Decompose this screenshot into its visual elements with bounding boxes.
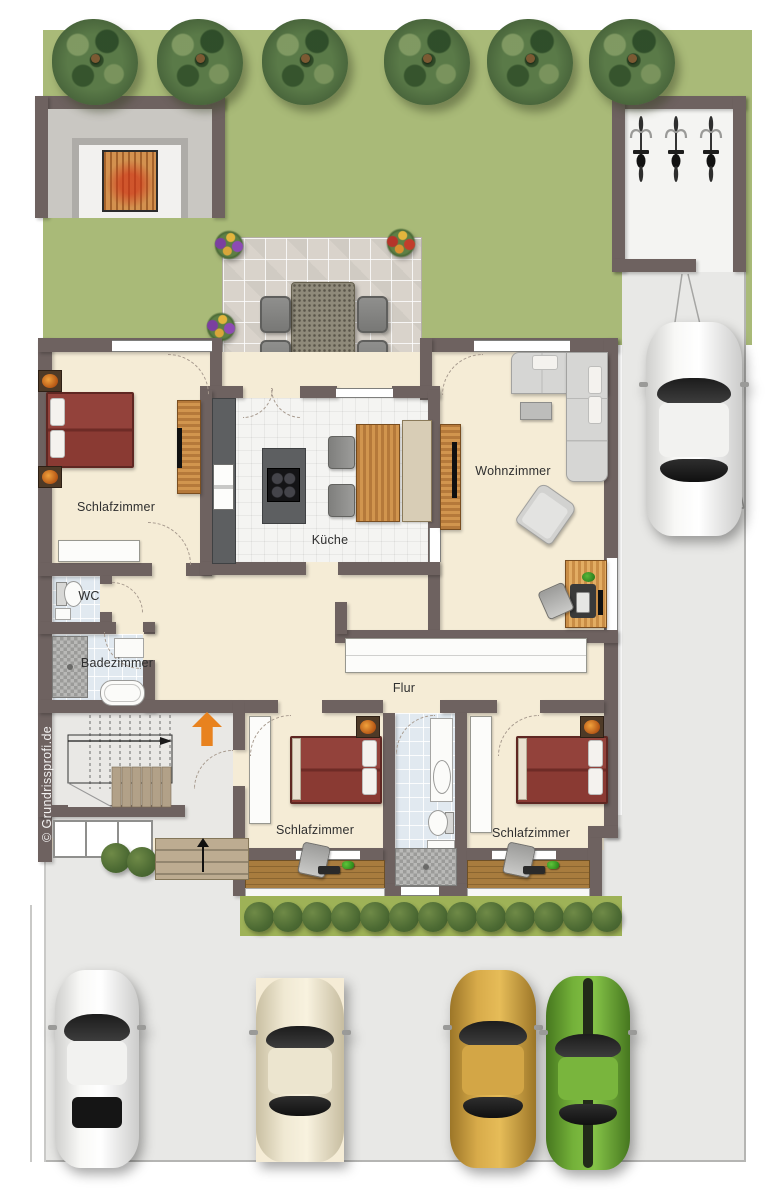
- hedge-bush: [476, 902, 506, 932]
- kitchen-sink: [213, 464, 234, 510]
- car-mirror: [740, 382, 749, 387]
- car-mirror: [639, 382, 648, 387]
- bed-foot: [292, 738, 301, 800]
- car-mirror: [137, 1025, 146, 1030]
- hedge-bush: [592, 902, 622, 932]
- car-mirror: [539, 1030, 548, 1035]
- hedge-bush: [447, 902, 477, 932]
- kitchen-chair: [328, 484, 355, 517]
- watermark: © Grundrissprofi.de: [40, 726, 54, 842]
- car-white-sports: [55, 970, 139, 1168]
- bottle: [547, 861, 559, 869]
- nightstand: [38, 370, 62, 392]
- hedge-bush: [389, 902, 419, 932]
- garage-wall-left: [35, 96, 48, 218]
- monitor: [598, 590, 603, 615]
- hedge-bush: [563, 902, 593, 932]
- flower-pot: [384, 228, 418, 258]
- sofa-pillow: [588, 396, 602, 424]
- window: [474, 340, 570, 352]
- step-arrow-head-icon: [197, 838, 209, 847]
- bike-storage-wall-bottom: [612, 259, 696, 272]
- wall: [338, 562, 440, 575]
- tray: [523, 866, 545, 874]
- terrace-chair: [260, 296, 291, 333]
- wall: [245, 700, 278, 713]
- pillow: [50, 430, 65, 458]
- cooktop: [267, 468, 300, 502]
- pillow: [50, 398, 65, 426]
- car-mirror: [249, 1030, 258, 1035]
- wall: [335, 602, 347, 634]
- hedge-bush: [505, 902, 535, 932]
- hedge-bush: [418, 902, 448, 932]
- door-leaf: [429, 528, 441, 562]
- hand-sink: [55, 608, 71, 620]
- pillow: [362, 768, 377, 795]
- sofa-pillow: [532, 355, 558, 370]
- step-arrow-icon: [202, 846, 204, 872]
- room-label-hallway: Flur: [393, 681, 415, 695]
- window: [112, 340, 212, 352]
- tree-icon: [487, 19, 573, 105]
- car-roof: [462, 1045, 524, 1095]
- pillow: [362, 740, 377, 767]
- car-roof: [659, 403, 728, 457]
- car-mirror: [443, 1025, 452, 1030]
- car-gold: [450, 970, 536, 1168]
- car-roof: [268, 1048, 331, 1094]
- wall: [200, 390, 212, 576]
- room-label-bedroom-br: Schlafzimmer: [492, 826, 570, 840]
- wall: [588, 838, 602, 896]
- car-roof: [67, 1041, 128, 1085]
- room-label-living: Wohnzimmer: [475, 464, 550, 478]
- bathtub: [100, 680, 145, 706]
- wall: [588, 826, 618, 838]
- bike-storage-wall-right: [733, 96, 746, 272]
- pillow: [588, 768, 603, 795]
- wall: [322, 700, 383, 713]
- hedge-bush: [534, 902, 564, 932]
- wall: [143, 622, 155, 632]
- terrace-chair: [357, 296, 388, 333]
- nightstand: [38, 466, 62, 488]
- room-label-bedroom-top: Schlafzimmer: [77, 500, 155, 514]
- tree-icon: [52, 19, 138, 105]
- stairs: [52, 711, 184, 831]
- car-green: [546, 976, 630, 1170]
- bicycle-icon: [698, 114, 724, 182]
- hedge-bush: [244, 902, 274, 932]
- tree-icon: [589, 19, 675, 105]
- hedge-bush: [360, 902, 390, 932]
- sofa-pillow: [588, 366, 602, 394]
- wall: [440, 700, 497, 713]
- room-label-bedroom-bl: Schlafzimmer: [276, 823, 354, 837]
- sideboard: [58, 540, 140, 562]
- car-roof: [558, 1057, 619, 1100]
- bath-opening: [401, 886, 439, 896]
- car-mirror: [48, 1025, 57, 1030]
- wall: [233, 700, 245, 750]
- hedge-bush: [273, 902, 303, 932]
- garage-wall-right: [212, 96, 225, 218]
- nightstand: [356, 716, 380, 738]
- sidewalk-line-inner: [44, 815, 46, 1162]
- washbasin: [433, 760, 451, 794]
- wall: [540, 700, 604, 713]
- tree-icon: [157, 19, 243, 105]
- shower: [395, 848, 457, 886]
- bush: [127, 847, 157, 877]
- car-windshield: [64, 1014, 130, 1044]
- car-mirror: [342, 1030, 351, 1035]
- tree-icon: [262, 19, 348, 105]
- kitchen-chair: [328, 436, 355, 469]
- tv: [452, 442, 457, 498]
- wardrobe: [470, 716, 492, 833]
- tv-sideboard: [440, 424, 461, 530]
- car-white-driveway: [646, 322, 742, 536]
- bicycle-icon: [628, 114, 654, 182]
- tree-icon: [384, 19, 470, 105]
- parking-lot-border-bottom: [45, 1160, 746, 1162]
- hedge-bush: [331, 902, 361, 932]
- keyboard: [576, 592, 590, 613]
- hedge-bush: [302, 902, 332, 932]
- tv: [177, 428, 182, 468]
- bicycle-icon: [663, 114, 689, 182]
- car-cream: [256, 978, 344, 1162]
- pillow: [588, 740, 603, 767]
- sidewalk-line-outer: [30, 905, 32, 1162]
- wall: [100, 612, 112, 622]
- window: [336, 388, 393, 398]
- car-mirror: [628, 1030, 637, 1035]
- hall-wardrobe: [345, 638, 587, 673]
- car-windshield: [266, 1026, 335, 1050]
- flower-pot: [212, 230, 246, 260]
- kitchen-table: [356, 424, 400, 522]
- car-engine-cover: [72, 1097, 122, 1129]
- coffee-table: [520, 402, 552, 420]
- car-rear-window: [269, 1096, 331, 1116]
- tray: [318, 866, 340, 874]
- room-label-wc: WC: [78, 589, 99, 603]
- wall: [100, 576, 112, 584]
- nightstand: [580, 716, 604, 738]
- car-windshield: [459, 1021, 526, 1047]
- window: [606, 558, 618, 630]
- room-label-kitchen: Küche: [312, 533, 348, 547]
- car-windshield: [657, 378, 732, 406]
- kitchen-cabinet: [402, 420, 432, 522]
- bottle: [342, 861, 354, 869]
- car-windshield: [555, 1034, 621, 1059]
- plant: [582, 572, 595, 582]
- wall: [38, 563, 152, 576]
- wall: [300, 386, 337, 398]
- garage-wood-mat: [102, 150, 158, 212]
- room-label-bathroom: Badezimmer: [81, 656, 153, 670]
- floor-plan: Schlafzimmer Küche Wohnzimmer WC Badezim…: [0, 0, 775, 1200]
- bike-storage-wall-left: [612, 96, 625, 272]
